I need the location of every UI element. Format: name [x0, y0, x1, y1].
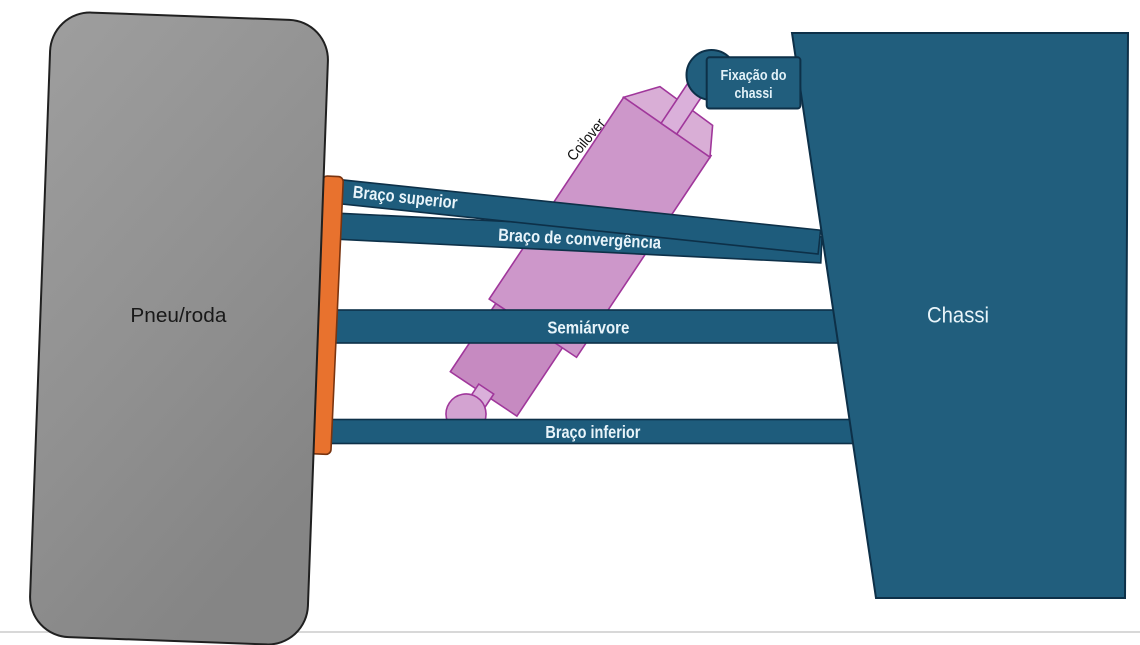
svg-text:Semiárvore: Semiárvore	[547, 318, 629, 338]
svg-text:Pneu/roda: Pneu/roda	[130, 305, 227, 327]
svg-text:Chassi: Chassi	[927, 303, 989, 328]
svg-text:Braço inferior: Braço inferior	[545, 422, 640, 442]
svg-text:chassi: chassi	[735, 85, 773, 102]
svg-text:Fixação do: Fixação do	[721, 67, 787, 84]
